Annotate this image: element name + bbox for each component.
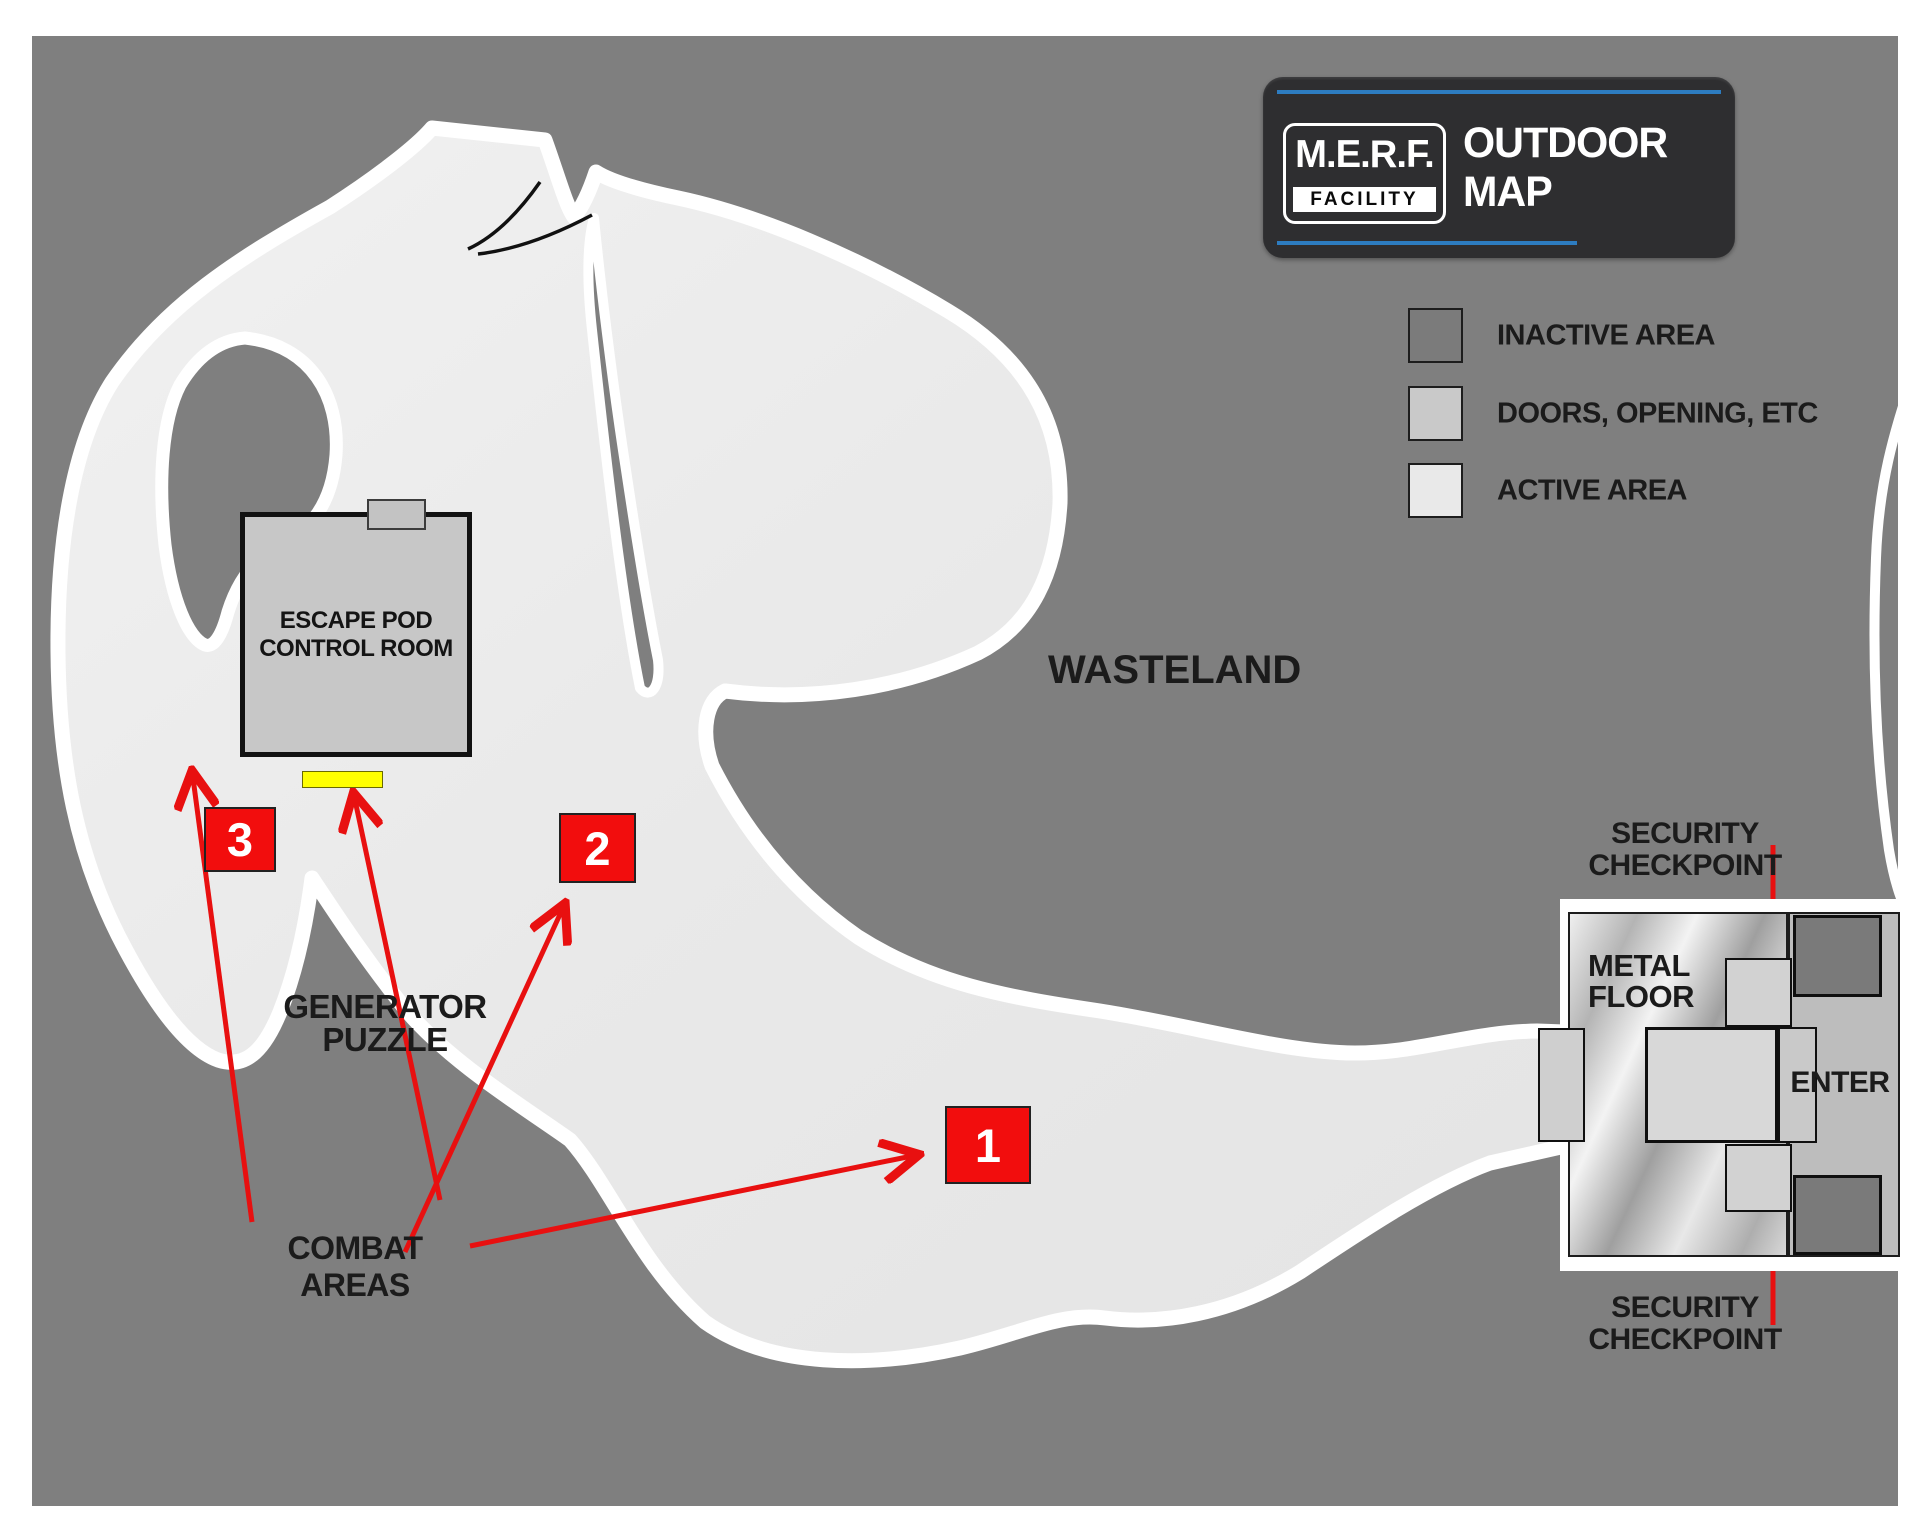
combat-area-marker-3: 3 bbox=[204, 807, 276, 872]
legend-label-active: ACTIVE AREA bbox=[1497, 474, 1687, 507]
merf-facility-logo: M.E.R.F. FACILITY bbox=[1283, 123, 1446, 224]
generator-puzzle-marker bbox=[302, 771, 383, 788]
legend-label-inactive: INACTIVE AREA bbox=[1497, 319, 1715, 352]
metal-floor-label: METAL FLOOR bbox=[1588, 950, 1694, 1012]
security-checkpoint-top-label: SECURITY CHECKPOINT bbox=[1585, 818, 1785, 881]
legend-swatch-inactive bbox=[1408, 308, 1463, 363]
combat-areas-label: COMBAT AREAS bbox=[235, 1230, 475, 1304]
inactive-room-bottom bbox=[1793, 1175, 1882, 1255]
security-checkpoint-door-bottom bbox=[1725, 1144, 1792, 1212]
security-checkpoint-door-top bbox=[1725, 958, 1792, 1027]
logo-merf-text: M.E.R.F. bbox=[1288, 133, 1442, 177]
generator-puzzle-label: GENERATOR PUZZLE bbox=[255, 990, 515, 1056]
escape-pod-room-door bbox=[367, 499, 426, 530]
wasteland-label: WASTELAND bbox=[1048, 648, 1301, 693]
right-edge-inactive-border bbox=[1875, 378, 1912, 922]
logo-facility-text: FACILITY bbox=[1293, 187, 1436, 212]
enter-label: ENTER bbox=[1790, 1066, 1890, 1100]
combat-area-marker-1: 1 bbox=[945, 1106, 1031, 1184]
escape-pod-control-room: ESCAPE POD CONTROL ROOM bbox=[240, 512, 472, 757]
page-title: OUTDOOR MAP bbox=[1463, 77, 1724, 258]
escape-pod-control-room-label: ESCAPE POD CONTROL ROOM bbox=[259, 607, 453, 662]
facility-center-room bbox=[1645, 1027, 1778, 1143]
facility-door-left bbox=[1538, 1028, 1585, 1142]
legend-swatch-doors bbox=[1408, 386, 1463, 441]
inactive-room-top bbox=[1793, 915, 1882, 997]
combat-area-marker-2: 2 bbox=[559, 813, 636, 883]
legend-label-doors: DOORS, OPENING, ETC bbox=[1497, 397, 1818, 430]
header-panel: M.E.R.F. FACILITY OUTDOOR MAP bbox=[1263, 77, 1735, 258]
security-checkpoint-bottom-label: SECURITY CHECKPOINT bbox=[1585, 1292, 1785, 1355]
outdoor-map-page: M.E.R.F. FACILITY OUTDOOR MAP INACTIVE A… bbox=[0, 0, 1920, 1537]
legend-swatch-active bbox=[1408, 463, 1463, 518]
